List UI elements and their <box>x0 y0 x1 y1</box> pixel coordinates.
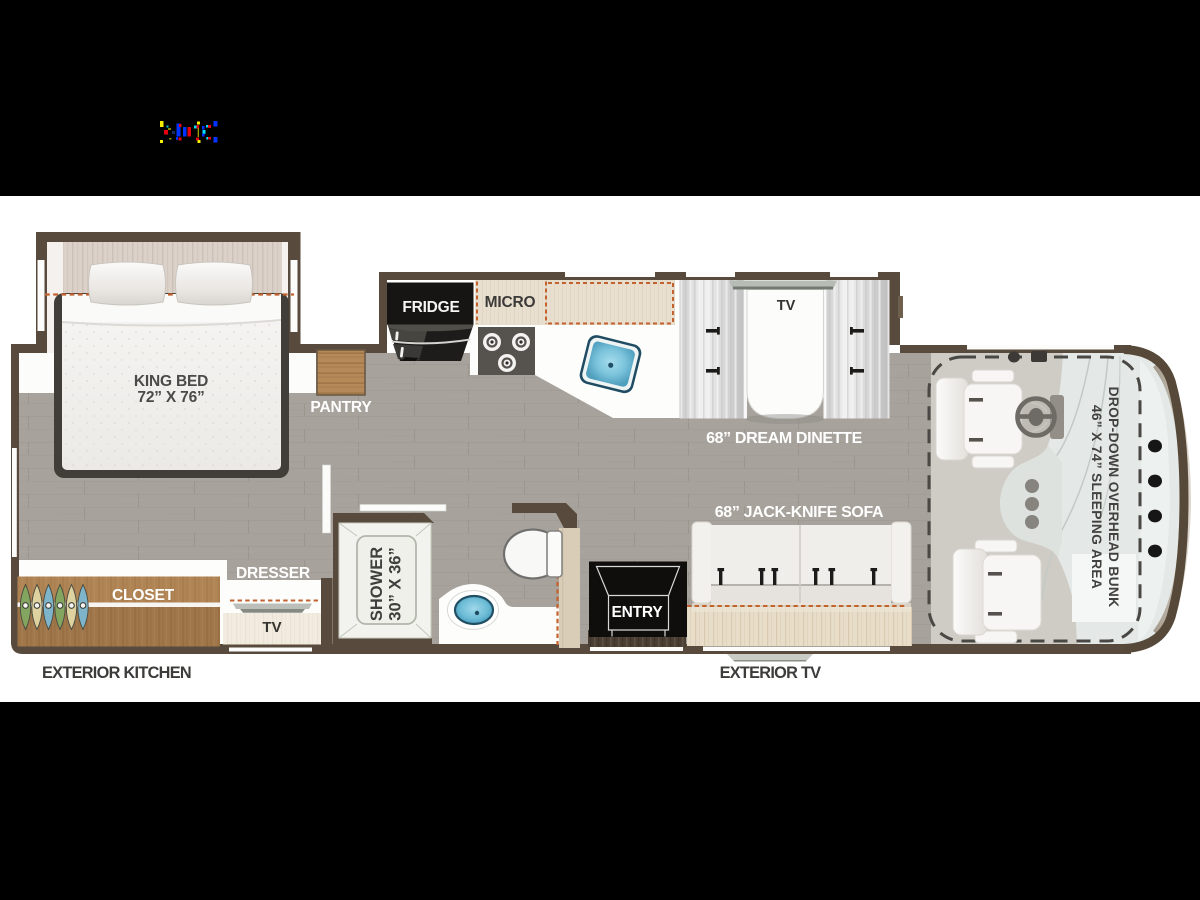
svg-text:DROP-DOWN OVERHEAD BUNK: DROP-DOWN OVERHEAD BUNK <box>1106 387 1121 608</box>
svg-text:DRESSER: DRESSER <box>236 565 310 582</box>
svg-text:68” JACK-KNIFE SOFA: 68” JACK-KNIFE SOFA <box>715 504 884 521</box>
svg-text:KING BED: KING BED <box>134 373 208 390</box>
svg-text:72” X 76”: 72” X 76” <box>137 389 204 406</box>
svg-text:EXTERIOR TV: EXTERIOR TV <box>720 664 822 682</box>
svg-text:TV: TV <box>262 619 281 636</box>
svg-text:PANTRY: PANTRY <box>310 399 372 416</box>
svg-text:TV: TV <box>777 298 796 314</box>
svg-text:68” DREAM DINETTE: 68” DREAM DINETTE <box>706 430 863 447</box>
svg-text:FRIDGE: FRIDGE <box>402 299 459 316</box>
svg-text:CLOSET: CLOSET <box>112 587 175 604</box>
svg-text:30” X 36”: 30” X 36” <box>387 547 405 620</box>
svg-text:46” X 74” SLEEPING AREA: 46” X 74” SLEEPING AREA <box>1089 405 1104 589</box>
svg-text:MICRO: MICRO <box>485 294 536 311</box>
svg-text:SHOWER: SHOWER <box>368 547 386 621</box>
svg-text:EXTERIOR KITCHEN: EXTERIOR KITCHEN <box>42 664 191 682</box>
svg-text:ENTRY: ENTRY <box>612 604 664 621</box>
